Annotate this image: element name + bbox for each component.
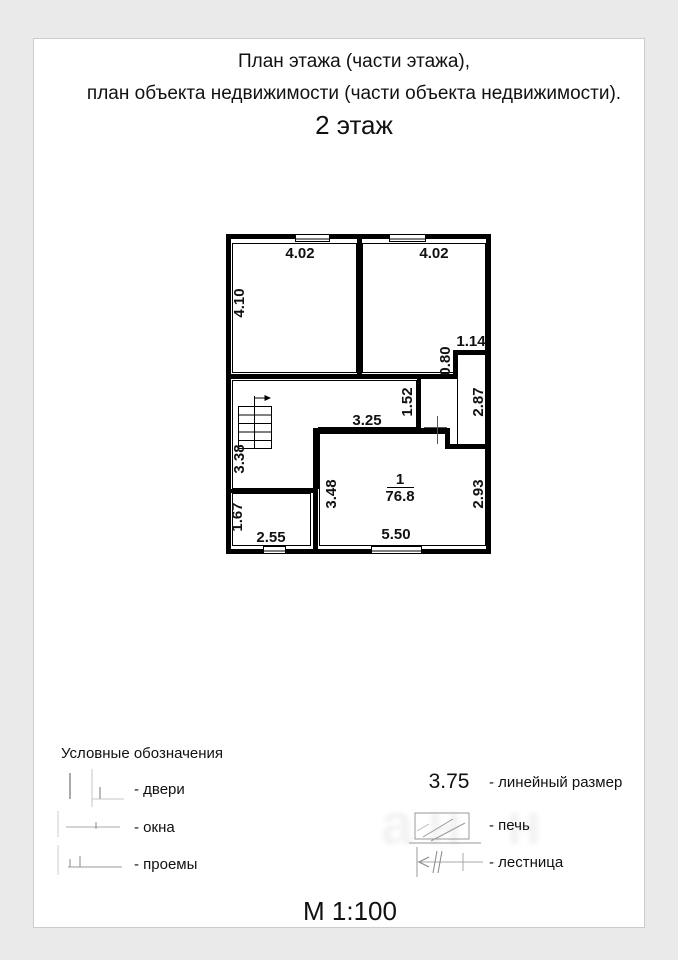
document-page: План этажа (части этажа), план объекта н… xyxy=(33,38,645,928)
staircase xyxy=(239,395,272,449)
window-top-right xyxy=(390,235,426,242)
doors-label: - двери xyxy=(134,781,185,798)
dim-bigroom-left-height: 3.48 xyxy=(323,479,340,508)
scale-label: М 1:100 xyxy=(150,896,550,927)
outline-hallway xyxy=(233,381,417,489)
outline-room1 xyxy=(233,244,357,373)
floor-plan-drawing: 4.02 4.02 4.10 1.14 0.80 2.87 1.52 3.25 … xyxy=(226,234,491,554)
dimension-sample-value: 3.75 xyxy=(414,770,484,794)
dim-passage-height: 1.52 xyxy=(399,387,416,416)
room-number: 1 xyxy=(396,471,404,488)
windows-label: - окна xyxy=(134,819,175,836)
dim-smallroom-width: 2.55 xyxy=(256,529,285,546)
legend-heading: Условные обозначения xyxy=(61,745,223,762)
stairs-label: - лестница xyxy=(489,854,563,871)
stair-arrow-head xyxy=(265,395,272,401)
stove-legend-symbol xyxy=(409,811,487,845)
dim-bigroom-width: 5.50 xyxy=(381,526,410,543)
window-bottom-right xyxy=(372,547,422,554)
dim-corridor-height: 2.87 xyxy=(470,387,487,416)
dim-bigroom-right-height: 2.93 xyxy=(470,479,487,508)
stairs-legend-symbol xyxy=(409,845,487,879)
dim-room1-width: 4.02 xyxy=(285,245,314,262)
document-canvas: { "titles": { "line1": "План этажа (част… xyxy=(0,0,678,960)
stove-label: - печь xyxy=(489,817,530,834)
wall-rooms-bottom xyxy=(226,374,457,379)
dim-smallroom-height: 1.67 xyxy=(229,502,246,531)
room-area: 76.8 xyxy=(385,488,414,505)
wall-smallroom-top xyxy=(226,489,318,493)
dimension-label: - линейный размер xyxy=(489,774,622,791)
dim-room2-width: 4.02 xyxy=(419,245,448,262)
title-line-2: план объекта недвижимости (части объекта… xyxy=(64,83,644,105)
walls xyxy=(226,234,491,554)
window-top-left xyxy=(296,235,330,242)
window-bottom-left xyxy=(264,547,286,554)
dim-room1-height: 4.10 xyxy=(231,288,248,317)
title-line-1: План этажа (части этажа), xyxy=(64,51,644,73)
wall-hall-right xyxy=(417,374,421,433)
openings-label: - проемы xyxy=(134,856,197,873)
dim-hall-width: 3.25 xyxy=(352,412,381,429)
window-legend-symbol xyxy=(54,811,126,843)
title-line-3-floor: 2 этаж xyxy=(64,110,644,141)
opening-legend-symbol xyxy=(54,845,126,879)
room-area-label: 1 76.8 xyxy=(385,471,414,505)
wall-between-rooms xyxy=(357,234,362,379)
door-legend-symbol xyxy=(54,769,126,809)
dim-stair-side: 3.38 xyxy=(231,444,248,473)
dim-notch-width: 1.14 xyxy=(456,333,486,350)
dim-notch-height: 0.80 xyxy=(437,346,454,375)
